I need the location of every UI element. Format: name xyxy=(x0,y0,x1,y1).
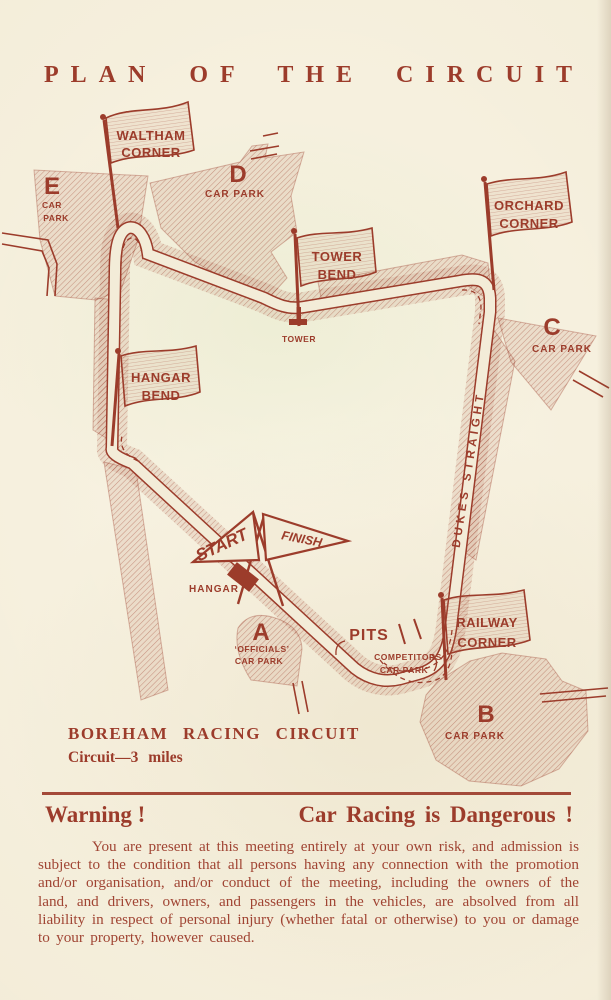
car-park-b-label: CAR PARK xyxy=(445,731,505,742)
car-park-a-letter: A xyxy=(252,619,269,646)
car-park-d-letter: D xyxy=(229,161,246,188)
flag-railway-line2: CORNER xyxy=(457,635,516,650)
car-park-d-label: CAR PARK xyxy=(205,189,265,200)
flag-orchard-line1: ORCHARD xyxy=(494,198,564,213)
flag-tower-line2: BEND xyxy=(318,267,357,282)
competitors-line2: CAR PARK xyxy=(380,665,429,675)
warning-heading-row: Warning ! Car Racing is Dangerous ! xyxy=(45,802,573,828)
flag-railway-line1: RAILWAY xyxy=(456,615,518,630)
car-park-e-line2: PARK xyxy=(43,213,69,223)
flag-hangar-line2: BEND xyxy=(142,388,181,403)
pit-tick xyxy=(399,624,405,644)
flag-hangar-line1: HANGAR xyxy=(131,370,191,385)
circuit-caption-length: Circuit—3 miles xyxy=(68,749,183,767)
pit-tick xyxy=(414,619,421,639)
programme-page: PLAN OF THE CIRCUIT xyxy=(0,0,611,1000)
pits-label: PITS xyxy=(349,627,389,644)
car-park-c-label: CAR PARK xyxy=(532,344,592,355)
disclaimer-paragraph: You are present at this meeting entirely… xyxy=(38,838,579,947)
car-park-e-letter: E xyxy=(44,173,60,200)
tower-label: TOWER xyxy=(282,334,316,344)
flag-tower-line1: TOWER xyxy=(312,249,363,264)
flag-waltham-line1: WALTHAM xyxy=(117,128,186,143)
section-divider xyxy=(42,792,571,795)
car-park-e-line1: CAR xyxy=(42,200,62,210)
car-park-c-letter: C xyxy=(543,314,560,341)
competitors-line1: COMPETITORS xyxy=(374,652,442,662)
hangar-label: HANGAR xyxy=(189,584,239,595)
car-park-b-letter: B xyxy=(477,701,494,728)
car-park-a-line1: ‘OFFICIALS’ xyxy=(234,644,289,654)
danger-label: Car Racing is Dangerous ! xyxy=(298,802,573,828)
circuit-caption-title: BOREHAM RACING CIRCUIT xyxy=(68,724,360,744)
warning-label: Warning ! xyxy=(45,802,145,828)
flag-orchard-line2: CORNER xyxy=(499,216,558,231)
car-park-a-line2: CAR PARK xyxy=(235,656,284,666)
flag-waltham-line2: CORNER xyxy=(121,145,180,160)
track xyxy=(112,228,490,681)
